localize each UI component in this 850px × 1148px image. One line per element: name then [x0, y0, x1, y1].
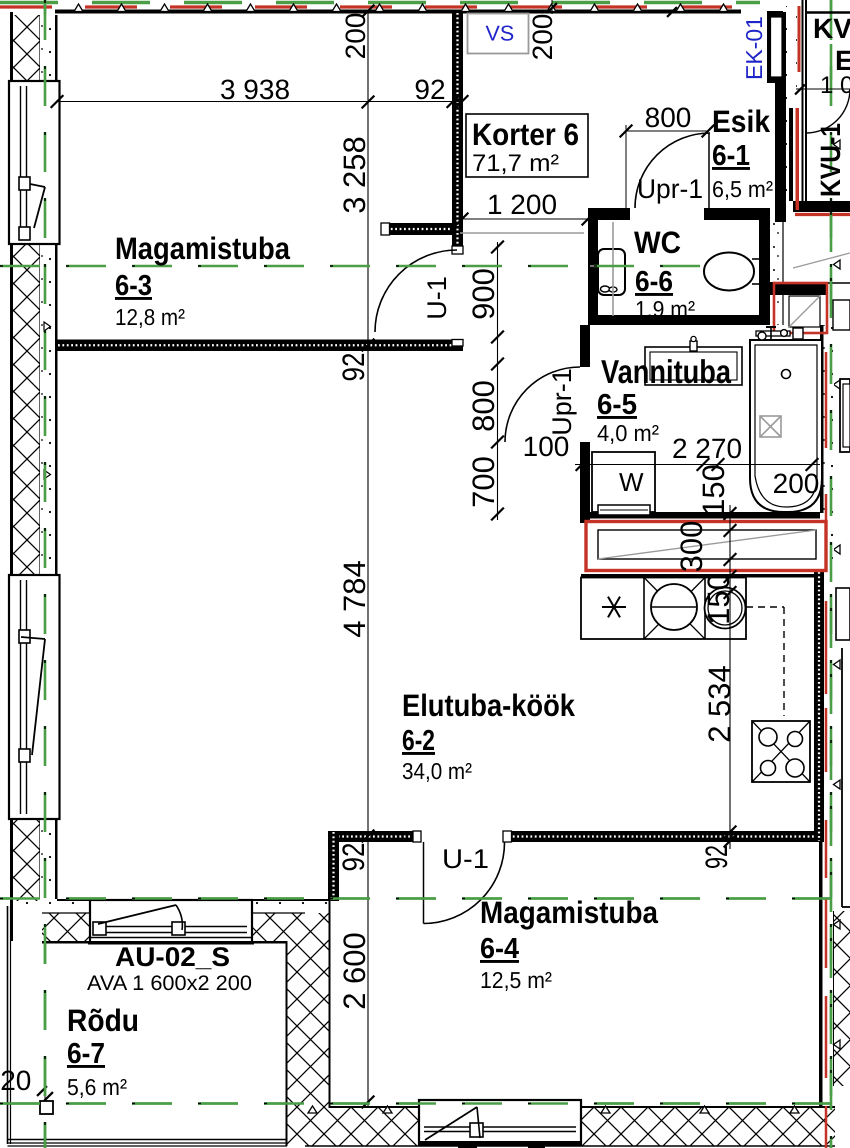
svg-text:34,0 m²: 34,0 m²	[402, 758, 472, 784]
svg-text:4,0 m²: 4,0 m²	[597, 420, 659, 446]
svg-text:Magamistuba: Magamistuba	[115, 231, 291, 266]
svg-text:W: W	[619, 467, 644, 497]
svg-text:Magamistuba: Magamistuba	[480, 895, 659, 930]
svg-text:AVA 1 600x2 200: AVA 1 600x2 200	[87, 972, 252, 995]
svg-text:6-7: 6-7	[67, 1038, 105, 1070]
svg-text:71,7 m²: 71,7 m²	[472, 150, 559, 177]
svg-text:6-6: 6-6	[635, 266, 673, 298]
svg-text:900: 900	[466, 268, 501, 320]
svg-text:2 600: 2 600	[337, 932, 372, 1010]
svg-text:1,9 m²: 1,9 m²	[635, 296, 695, 322]
svg-text:6-3: 6-3	[115, 270, 152, 302]
svg-text:2 270: 2 270	[672, 433, 742, 464]
svg-text:U-1: U-1	[442, 844, 489, 874]
svg-text:6-2: 6-2	[402, 725, 435, 757]
svg-text:300: 300	[674, 521, 709, 573]
svg-text:WC: WC	[634, 225, 681, 260]
svg-text:150: 150	[696, 464, 731, 516]
svg-text:92: 92	[336, 353, 371, 382]
svg-text:KV: KV	[813, 13, 850, 44]
svg-text:EK-01: EK-01	[741, 16, 767, 80]
svg-text:Upr-1: Upr-1	[637, 174, 703, 204]
svg-text:4 784: 4 784	[337, 560, 372, 638]
svg-text:800: 800	[645, 102, 692, 133]
svg-text:Vannituba: Vannituba	[601, 353, 732, 390]
svg-text:2 534: 2 534	[702, 665, 737, 743]
svg-text:5,6 m²: 5,6 m²	[67, 1074, 127, 1100]
svg-text:VS: VS	[486, 22, 515, 46]
svg-text:200: 200	[773, 468, 820, 499]
svg-text:Upr-1: Upr-1	[547, 368, 577, 436]
svg-text:Esik: Esik	[712, 104, 771, 139]
svg-text:92: 92	[699, 845, 734, 869]
svg-text:3 938: 3 938	[220, 74, 290, 105]
svg-text:Korter 6: Korter 6	[472, 117, 579, 152]
svg-text:150: 150	[701, 573, 736, 625]
svg-text:AU-02_S: AU-02_S	[115, 942, 230, 972]
svg-text:6-5: 6-5	[597, 389, 637, 421]
svg-text:U-1: U-1	[422, 276, 452, 320]
svg-text:92: 92	[414, 74, 445, 105]
svg-text:6-4: 6-4	[480, 933, 519, 965]
svg-text:200: 200	[527, 14, 558, 61]
svg-text:12,8 m²: 12,8 m²	[115, 304, 185, 330]
svg-text:6,5 m²: 6,5 m²	[712, 176, 773, 202]
svg-text:KVU-1: KVU-1	[815, 123, 846, 197]
svg-text:700: 700	[466, 456, 501, 508]
svg-text:1 200: 1 200	[487, 189, 557, 220]
svg-text:Elutuba-köök: Elutuba-köök	[402, 688, 576, 723]
svg-text:800: 800	[466, 380, 501, 432]
svg-text:200: 200	[340, 13, 371, 60]
svg-text:92: 92	[336, 843, 371, 872]
svg-text:6-1: 6-1	[712, 140, 750, 172]
svg-text:Rõdu: Rõdu	[67, 1003, 139, 1038]
svg-text:3 258: 3 258	[337, 136, 372, 214]
svg-text:1 0: 1 0	[820, 72, 850, 99]
svg-text:12,5 m²: 12,5 m²	[480, 967, 552, 993]
svg-text:120: 120	[0, 1065, 31, 1096]
